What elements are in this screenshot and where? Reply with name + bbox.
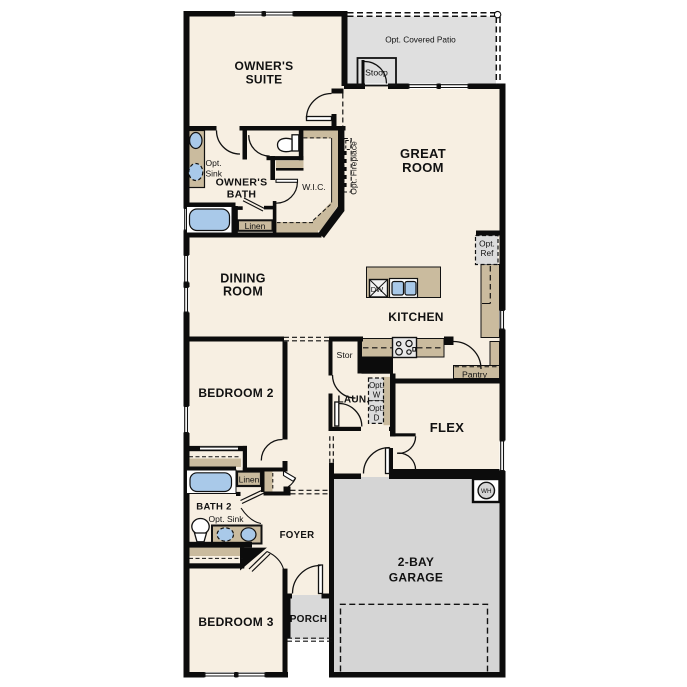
svg-text:OWNER'S: OWNER'S bbox=[216, 176, 268, 188]
svg-text:DW: DW bbox=[371, 285, 384, 294]
svg-text:Linen: Linen bbox=[239, 474, 260, 484]
svg-text:W: W bbox=[373, 391, 381, 400]
svg-text:Opt.: Opt. bbox=[206, 158, 222, 168]
svg-text:Opt. Sink: Opt. Sink bbox=[209, 514, 245, 524]
svg-text:D: D bbox=[374, 414, 380, 423]
svg-text:ROOM: ROOM bbox=[402, 160, 444, 175]
svg-text:FLEX: FLEX bbox=[430, 420, 464, 435]
svg-text:Opt.: Opt. bbox=[479, 239, 495, 249]
svg-text:DINING: DINING bbox=[220, 271, 266, 285]
svg-text:Pantry: Pantry bbox=[462, 370, 488, 380]
svg-text:WH: WH bbox=[481, 488, 492, 495]
svg-text:BATH 2: BATH 2 bbox=[196, 502, 231, 513]
svg-text:Opt. Covered Patio: Opt. Covered Patio bbox=[385, 34, 456, 44]
svg-text:LAUN.: LAUN. bbox=[337, 395, 369, 406]
svg-text:BATH: BATH bbox=[227, 188, 257, 200]
svg-text:OWNER'S: OWNER'S bbox=[235, 59, 294, 73]
svg-text:Opt. Fireplace: Opt. Fireplace bbox=[349, 141, 359, 195]
svg-text:SUITE: SUITE bbox=[246, 73, 283, 87]
svg-text:BEDROOM 2: BEDROOM 2 bbox=[198, 386, 273, 400]
svg-text:ROOM: ROOM bbox=[223, 285, 263, 299]
svg-text:GARAGE: GARAGE bbox=[389, 571, 443, 585]
svg-text:BEDROOM 3: BEDROOM 3 bbox=[198, 615, 273, 629]
svg-text:Stor: Stor bbox=[337, 350, 353, 360]
svg-text:FOYER: FOYER bbox=[280, 530, 315, 541]
svg-text:W.I.C.: W.I.C. bbox=[302, 182, 326, 192]
svg-text:Linen: Linen bbox=[245, 221, 266, 231]
svg-text:KITCHEN: KITCHEN bbox=[388, 310, 443, 324]
svg-text:2-BAY: 2-BAY bbox=[398, 555, 434, 569]
svg-text:Opt.: Opt. bbox=[369, 381, 384, 390]
svg-text:PORCH: PORCH bbox=[290, 614, 328, 625]
svg-text:Stoop: Stoop bbox=[365, 67, 388, 77]
svg-text:Ref: Ref bbox=[481, 248, 495, 258]
svg-text:Opt.: Opt. bbox=[369, 404, 384, 413]
